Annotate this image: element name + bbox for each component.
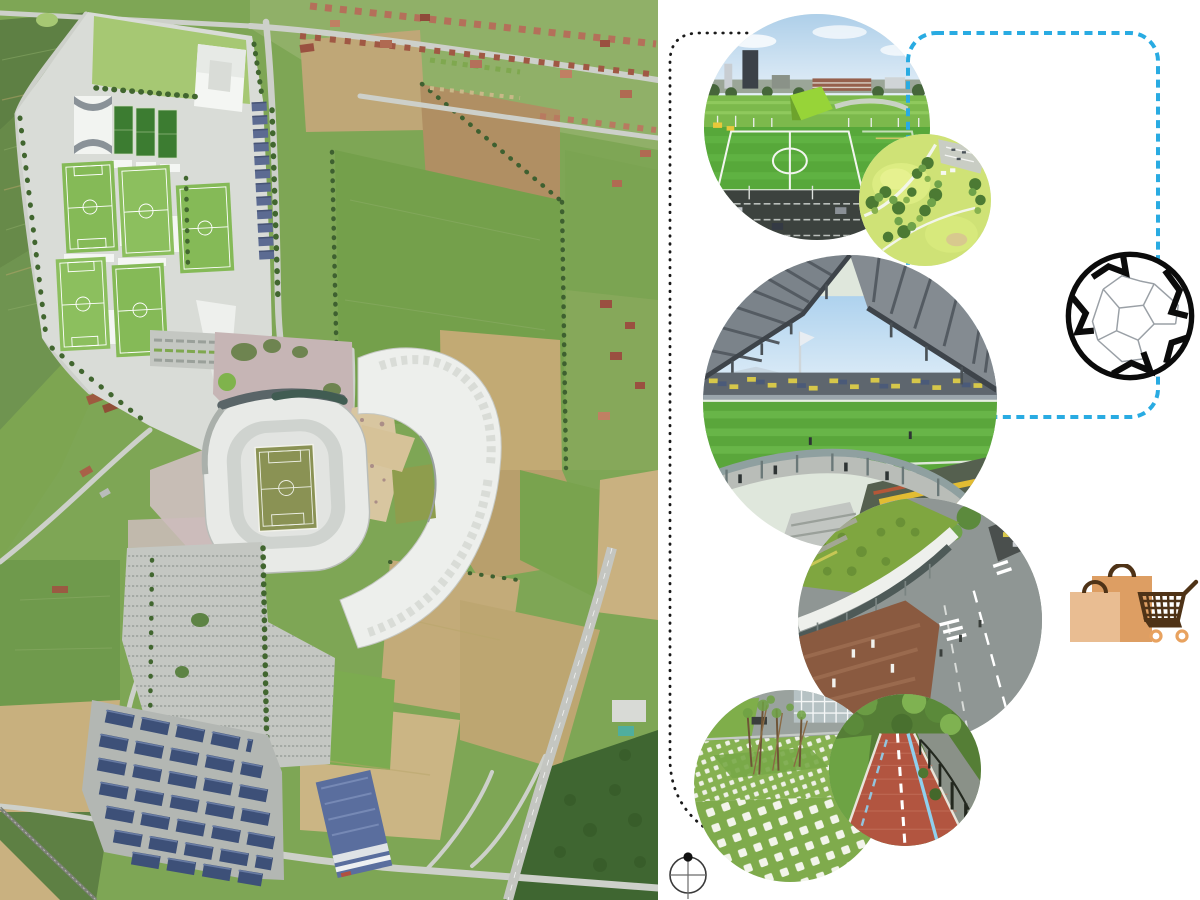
compass-north-icon xyxy=(664,849,714,900)
tower-silhouette xyxy=(742,50,758,88)
north-dot xyxy=(683,852,692,861)
soccer-ball-icon xyxy=(1063,249,1197,383)
far-stand xyxy=(703,373,997,401)
presentation-board xyxy=(0,0,1200,900)
rooftop-park-photo xyxy=(859,134,991,266)
cycle-path-photo xyxy=(829,694,981,846)
sand-patch xyxy=(946,233,967,246)
shopping-icon xyxy=(1066,564,1200,652)
